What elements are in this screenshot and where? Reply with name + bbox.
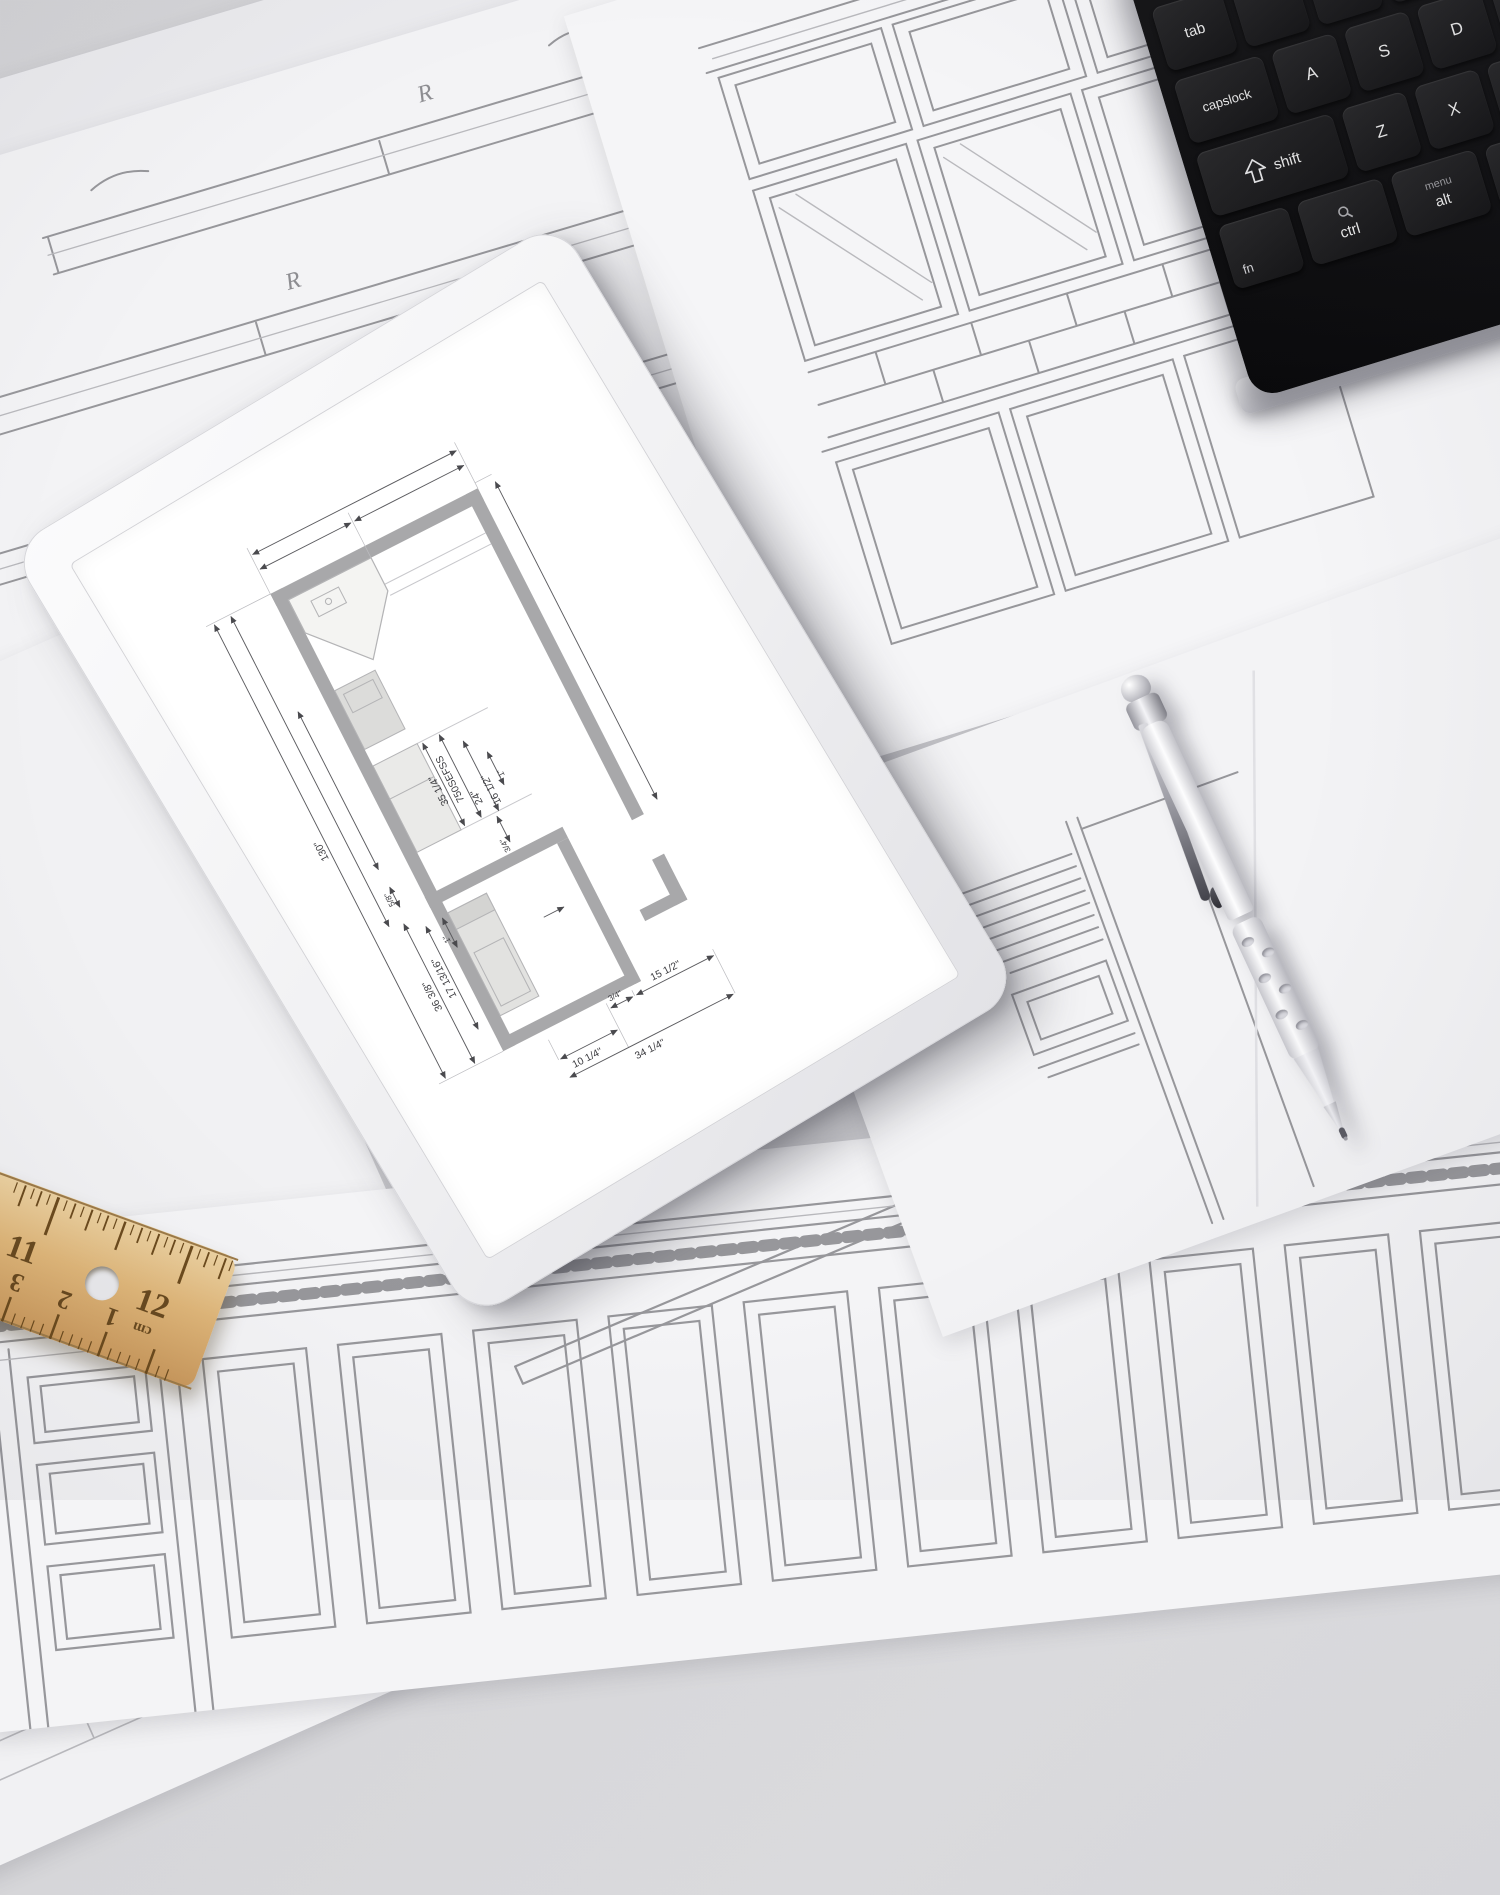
pen-tip-cone — [1315, 1097, 1356, 1136]
shift-arrow-icon — [1242, 156, 1270, 185]
search-icon — [1335, 203, 1354, 222]
key-a-label: A — [1303, 63, 1320, 85]
key-shift-label: shift — [1271, 149, 1302, 173]
pen-grip-hole — [1260, 946, 1276, 960]
key-tab-label: tab — [1182, 19, 1207, 41]
dimension-label: 5/8" — [383, 891, 398, 908]
key-d-label: D — [1448, 18, 1466, 41]
pen-grip-hole — [1274, 1008, 1290, 1022]
ruler-cm-1: 1 — [100, 1301, 122, 1333]
dimension-label: 3/4" — [498, 837, 513, 854]
key-alt-label: alt — [1433, 190, 1453, 211]
pen-grip-hole — [1240, 935, 1256, 949]
pen-grip-hole — [1277, 982, 1293, 996]
ruler-cm-2: 2 — [53, 1284, 75, 1316]
key-z-label: Z — [1374, 121, 1390, 143]
ruler-cm-3: 3 — [6, 1267, 28, 1299]
dimension-label: 24" — [469, 787, 486, 806]
dimension-label: 1" — [495, 767, 506, 778]
key-fn-label: fn — [1241, 260, 1256, 278]
knob-mark: R — [281, 267, 304, 296]
key-ctrl-label: ctrl — [1338, 219, 1362, 241]
key-s-label: S — [1376, 40, 1393, 62]
dimension-label: 10 1/4" — [571, 1046, 605, 1071]
dimension-label: 34 1/4" — [633, 1037, 667, 1062]
dimension-label: 130" — [312, 839, 331, 863]
pen-grip-hole — [1294, 1018, 1310, 1032]
key-capslock-label: capslock — [1200, 85, 1253, 114]
pen-grip-hole — [1257, 971, 1273, 985]
knob-mark: R — [413, 79, 436, 108]
key-x-label: X — [1446, 98, 1463, 120]
ruler-inch-11: 11 — [1, 1228, 43, 1272]
